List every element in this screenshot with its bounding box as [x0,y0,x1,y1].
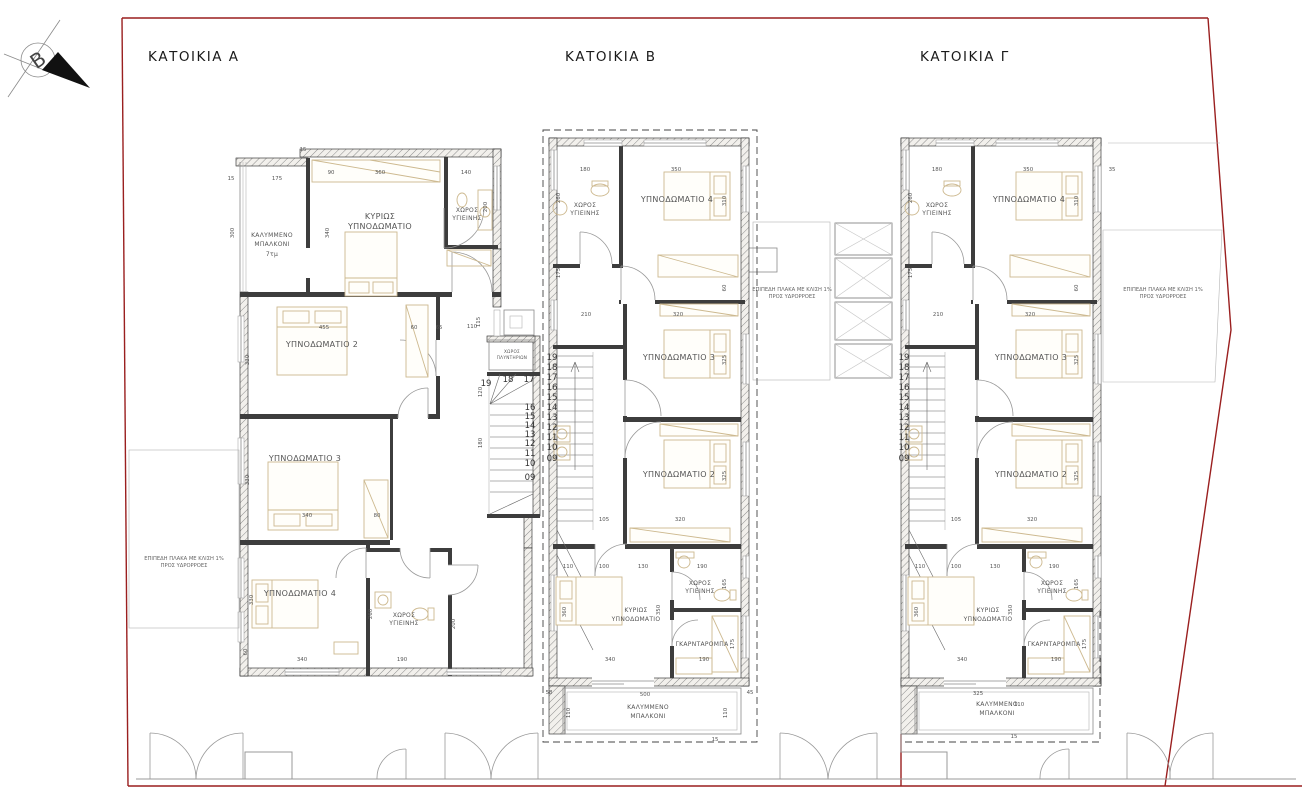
dimension-label: 100 [599,564,610,570]
dimension-label: 350 [1023,167,1034,173]
dimension-label: 15 [300,147,307,153]
dimension-label: 175 [730,639,736,649]
dimension-label: 105 [599,517,609,523]
dimension-label: 60 [243,648,249,655]
note-flat-slab-c-1: ΕΠΙΠΕΔΗ ΠΛΑΚΑ ΜΕ ΚΛΙΣΗ 1% [1123,287,1203,293]
dimension-label: 325 [1074,355,1080,365]
dimension-label: 165 [1074,579,1080,589]
dimension-label: 175 [1082,639,1088,649]
stair-step-number: 18 [547,363,558,373]
dimension-label: 260 [908,192,914,203]
street-fence [136,688,1296,779]
dimension-label: 340 [605,657,616,663]
note-flat-slab-mid-2: ΠΡΟΣ ΥΔΡΟΡΡΟΕΣ [769,294,816,300]
dimension-label: 35 [1109,167,1116,173]
dimension-label: 175 [272,176,282,182]
house-c-title: ΚΑΤΟΙΚΙΑ Γ [920,49,1010,65]
stair-step-number: 19 [547,353,558,363]
house-a-title: ΚΑΤΟΙΚΙΑ Α [148,49,240,65]
note-flat-slab-a-1: ΕΠΙΠΕΔΗ ΠΛΑΚΑ ΜΕ ΚΛΙΣΗ 1% [144,556,224,562]
dimension-label: 110 [723,707,729,718]
dimension-label: 350 [1008,604,1014,615]
stair-step-number: 09 [547,454,558,464]
room-label-bedroom4-b: ΥΠΝΟΔΩΜΑΤΙΟ 4 [640,195,713,204]
room-label-master-a-1: ΚΥΡΙΩΣ [365,212,395,221]
dimension-label: 105 [951,517,961,523]
dimension-label: 58 [546,690,553,696]
room-label-bath-top-b-1: ΧΩΡΟΣ [574,202,596,209]
room-label-bath-top-a-2: ΥΓΙΕΙΝΗΣ [451,215,482,222]
dimension-label: 65 [436,325,443,331]
floor-plan-drawing: Β ΚΑΤΟΙΚΙΑ Α ΚΑΤΟΙΚΙΑ Β ΚΑΤΟΙΚΙΑ Γ [0,0,1308,809]
dimension-label: 140 [461,170,472,176]
stair-step-number: 16 [547,383,558,393]
stair-step-number: 10 [525,459,536,469]
dimension-label: 110 [915,564,926,570]
north-pointer [42,52,90,88]
room-label-bedroom4-c: ΥΠΝΟΔΩΜΑΤΙΟ 4 [992,195,1065,204]
room-label-balcony-b-1: ΚΑΛΥΜΜΕΝΟ [627,704,669,711]
stair-step-number: 14 [899,403,910,413]
dimension-label: 60 [722,284,728,291]
dimension-label: 350 [671,167,682,173]
dimension-label: 300 [230,227,236,238]
stair-step-number: 11 [525,449,536,459]
room-label-bath-top-a-1: ΧΩΡΟΣ [456,207,478,214]
stair-step-number: 17 [899,373,910,383]
dimension-label: 325 [722,355,728,365]
dimension-label: 340 [302,513,313,519]
room-label-bath-c-2: ΥΓΙΕΙΝΗΣ [1036,588,1067,595]
dimension-label: 60 [411,325,418,331]
room-label-bath-b-2: ΥΓΙΕΙΝΗΣ [684,588,715,595]
dimension-label: 180 [580,167,591,173]
dimension-label: 310 [722,195,728,206]
dimensions-house-c: 1803503526031017521032060325325105320110… [908,167,1115,740]
dimension-label: 325 [1074,471,1080,481]
room-label-laundry-a-2: ΠΛΥΝΤΗΡΙΩΝ [497,355,528,360]
dimension-label: 360 [375,170,386,176]
dimension-label: 330 [245,474,251,485]
dimension-label: 110 [1014,702,1025,708]
dimension-label: 320 [1027,517,1038,523]
stair-step-number: 09 [525,473,536,483]
stair-step-number: 10 [547,443,558,453]
room-label-master-b-2: ΥΠΝΟΔΩΜΑΤΙΟ [611,616,661,623]
dimension-label: 200 [451,618,457,629]
stair-numbers-house-b: 1918171615141312111009 [547,353,558,464]
dimension-label: 130 [638,564,649,570]
room-label-bedroom2-a: ΥΠΝΟΔΩΜΑΤΙΟ 2 [285,340,358,349]
dimension-label: 455 [319,325,329,331]
room-label-bedroom3-b: ΥΠΝΟΔΩΜΑΤΙΟ 3 [642,353,715,362]
dimension-label: 260 [556,192,562,203]
dimension-label: 325 [722,471,728,481]
stair-step-number: 18 [503,375,514,385]
stair-step-number: 10 [899,443,910,453]
note-flat-slab-c-2: ΠΡΟΣ ΥΔΡΟΡΡΟΕΣ [1140,294,1187,300]
room-label-balcony-b-2: ΜΠΑΛΚΟΝΙ [630,713,665,720]
room-label-bath-top-c-1: ΧΩΡΟΣ [926,202,948,209]
room-label-bedroom2-b: ΥΠΝΟΔΩΜΑΤΙΟ 2 [642,470,715,479]
room-label-master-c-1: ΚΥΡΙΩΣ [976,607,999,614]
room-label-balcony-a-1: ΚΑΛΥΜΜΕΝΟ [251,232,293,239]
stair-step-number: 17 [524,375,535,385]
stair-step-number: 15 [899,393,910,403]
house-b-plan [543,130,757,742]
room-label-bath-b-1: ΧΩΡΟΣ [689,580,711,587]
dimension-label: 190 [699,657,710,663]
dimension-label: 115 [476,317,482,327]
note-flat-slab-mid-1: ΕΠΙΠΕΔΗ ΠΛΑΚΑ ΜΕ ΚΛΙΣΗ 1% [752,287,832,293]
stair-step-number: 11 [899,433,910,443]
stair-step-number: 12 [547,423,558,433]
room-label-bedroom3-c: ΥΠΝΟΔΩΜΑΤΙΟ 3 [994,353,1067,362]
dimension-label: 175 [908,268,914,278]
dimension-label: 200 [483,201,489,212]
stair-step-number: 18 [899,363,910,373]
dimension-label: 325 [973,691,983,697]
room-label-bath-top-c-2: ΥΓΙΕΙΝΗΣ [921,210,952,217]
dimension-label: 320 [675,517,686,523]
room-label-bath-a-2: ΥΓΙΕΙΝΗΣ [388,620,419,627]
stair-step-number: 14 [547,403,558,413]
room-label-balcony-a-area: 7τμ [266,251,278,258]
dimension-label: 190 [1049,564,1060,570]
dimension-label: 165 [722,579,728,589]
stair-step-number: 19 [899,353,910,363]
room-label-wardrobe-c: ΓΚΑΡΝΤΑΡΟΜΠΑ [1028,641,1082,648]
room-label-wardrobe-b: ΓΚΑΡΝΤΑΡΟΜΠΑ [676,641,730,648]
room-label-master-c-2: ΥΠΝΟΔΩΜΑΤΙΟ [963,616,1013,623]
dimension-label: 110 [566,707,572,718]
room-label-balcony-a-2: ΜΠΑΛΚΟΝΙ [254,241,289,248]
dimension-label: 320 [673,312,684,318]
stair-step-number: 12 [899,423,910,433]
room-label-balcony-c-2: ΜΠΑΛΚΟΝΙ [979,710,1014,717]
room-label-master-a-2: ΥΠΝΟΔΩΜΑΤΙΟ [347,222,412,231]
dimension-label: 175 [556,268,562,278]
dimension-label: 180 [478,437,484,448]
dimension-label: 330 [249,594,255,605]
stair-step-number: 16 [899,383,910,393]
dimension-label: 100 [951,564,962,570]
dimension-label: 260 [368,608,374,619]
stair-step-number: 09 [899,454,910,464]
stair-step-number: 13 [899,413,910,423]
gate-leaves [150,733,1213,779]
dimension-label: 80 [374,513,381,519]
stair-step-number: 19 [481,379,492,389]
room-label-bedroom2-c: ΥΠΝΟΔΩΜΑΤΙΟ 2 [994,470,1067,479]
dimension-label: 330 [245,354,251,365]
note-flat-slab-a-2: ΠΡΟΣ ΥΔΡΟΡΡΟΕΣ [161,563,208,569]
dimension-label: 45 [747,690,754,696]
dimension-label: 340 [297,657,308,663]
dimension-label: 15 [712,737,719,743]
dimension-label: 90 [328,170,335,176]
house-c-plan [901,138,1101,742]
room-label-balcony-c-1: ΚΑΛΥΜΜΕΝΟ [976,701,1018,708]
dimension-label: 500 [640,692,651,698]
dimension-label: 190 [697,564,708,570]
house-b-title: ΚΑΤΟΙΚΙΑ Β [565,49,657,65]
dimension-label: 60 [1074,284,1080,291]
room-label-bedroom3-a: ΥΠΝΟΔΩΜΑΤΙΟ 3 [268,454,341,463]
room-label-bath-a-1: ΧΩΡΟΣ [393,612,415,619]
dimension-label: 15 [1011,734,1018,740]
dimension-label: 360 [914,606,920,617]
floor-plan-page: Β ΚΑΤΟΙΚΙΑ Α ΚΑΤΟΙΚΙΑ Β ΚΑΤΟΙΚΙΑ Γ [0,0,1308,809]
dimension-label: 310 [1074,195,1080,206]
dimension-label: 320 [1025,312,1036,318]
dimension-label: 110 [563,564,574,570]
roof-skylights [835,223,892,378]
dimension-label: 190 [1051,657,1062,663]
room-label-laundry-a-1: ΧΩΡΟΣ [504,349,520,354]
stair-step-number: 13 [547,413,558,423]
room-label-bath-c-1: ΧΩΡΟΣ [1041,580,1063,587]
stair-step-number: 12 [525,439,536,449]
dimension-label: 350 [656,604,662,615]
dimension-label: 190 [397,657,408,663]
dimension-label: 340 [325,227,331,238]
room-label-bath-top-b-2: ΥΓΙΕΙΝΗΣ [569,210,600,217]
north-arrow-icon: Β [4,20,90,97]
stair-step-number: 17 [547,373,558,383]
dimension-label: 360 [562,606,568,617]
dimension-label: 340 [957,657,968,663]
stair-step-number: 11 [547,433,558,443]
stair-numbers-house-c: 1918171615141312111009 [899,353,910,464]
stair-step-number: 15 [547,393,558,403]
room-label-master-b-1: ΚΥΡΙΩΣ [624,607,647,614]
dimension-label: 180 [932,167,943,173]
dimension-label: 210 [933,312,944,318]
dimension-label: 15 [228,176,235,182]
dimension-label: 130 [990,564,1001,570]
dimension-label: 210 [581,312,592,318]
room-label-bedroom4-a: ΥΠΝΟΔΩΜΑΤΙΟ 4 [263,589,336,598]
